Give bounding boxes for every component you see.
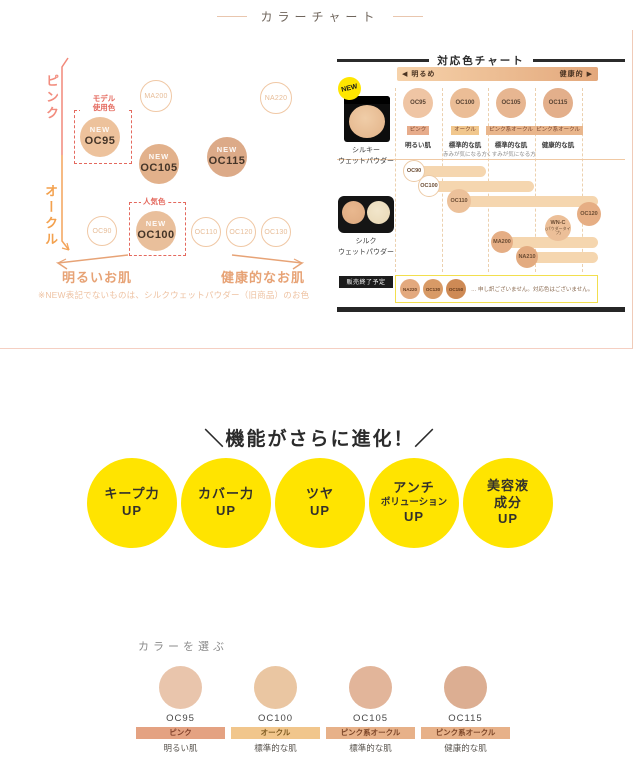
skin-type-label: 明るい肌 bbox=[391, 139, 445, 149]
swatch-row: OC95ピンク明るい肌OC100オークル標準的な肌OC105ピンク系オークル標準… bbox=[133, 666, 513, 754]
shade-circle-oc95: OC95 bbox=[403, 88, 433, 118]
swatch-oc95[interactable]: OC95ピンク明るい肌 bbox=[133, 666, 228, 754]
swatch-shade-label: OC95 bbox=[133, 713, 228, 724]
swatch-tone-badge: ピンク bbox=[136, 727, 225, 739]
shade-circle-oc90: OC90 bbox=[87, 216, 117, 246]
model-color-label: モデル 使用色 bbox=[80, 94, 128, 113]
shade-circle-oc100: NEWOC100 bbox=[136, 211, 176, 251]
y-axis-label-pink: ピンク bbox=[42, 74, 61, 122]
no-match-circle-na220: NA220 bbox=[400, 279, 420, 299]
no-match-text: … 申し訳ございません。対応色はございません。 bbox=[471, 285, 593, 293]
swatch-skin-label: 健康的な肌 bbox=[418, 742, 513, 754]
popular-color-label: 人気色 bbox=[141, 197, 168, 206]
swatch-skin-label: 明るい肌 bbox=[133, 742, 228, 754]
new-product-compact-image bbox=[344, 96, 390, 142]
swatch-shade-label: OC105 bbox=[323, 713, 418, 724]
swatch-color-circle bbox=[254, 666, 297, 709]
shade-circle-oc105: OC105 bbox=[496, 88, 526, 118]
shade-circle-oc115: OC115 bbox=[543, 88, 573, 118]
title-bar-right bbox=[533, 59, 625, 62]
swatch-oc100[interactable]: OC100オークル標準的な肌 bbox=[228, 666, 323, 754]
features-heading: ＼機能がさらに進化！／ bbox=[0, 424, 640, 451]
powder-pan-left bbox=[342, 201, 365, 224]
swatch-shade-label: OC100 bbox=[228, 713, 323, 724]
tone-scale-bar: ◀ 明るめ 健康的 ▶ bbox=[397, 67, 598, 81]
tone-badge: ピンク系オークル bbox=[486, 126, 536, 135]
swatch-oc115[interactable]: OC115ピンク系オークル健康的な肌 bbox=[418, 666, 513, 754]
x-axis-label-healthy: 健康的なお肌 bbox=[221, 267, 305, 286]
old-shade-circle-ma200: MA200 bbox=[491, 231, 513, 253]
feature-circle-4: 美容液成分UP bbox=[463, 458, 553, 548]
scale-left-label: ◀ 明るめ bbox=[402, 69, 435, 79]
skin-note-label bbox=[531, 150, 585, 157]
shade-column-oc115: OC115ピンク系オークル健康的な肌 bbox=[531, 88, 585, 157]
tone-badge: ピンク系オークル bbox=[533, 126, 583, 135]
swatch-tone-badge: オークル bbox=[231, 727, 320, 739]
powder-pan-right bbox=[367, 201, 390, 224]
no-match-circle-oc130: OC130 bbox=[423, 279, 443, 299]
shade-circle-ma200: MA200 bbox=[140, 80, 172, 112]
correspondence-chart-title-row: 対応色チャート bbox=[337, 53, 625, 68]
old-shade-circle-oc110: OC110 bbox=[447, 189, 471, 213]
feature-circle-1: カバー力UP bbox=[181, 458, 271, 548]
shade-column-oc95: OC95ピンク明るい肌 bbox=[391, 88, 445, 157]
swatch-skin-label: 標準的な肌 bbox=[323, 742, 418, 754]
color-picker-heading: カラーを選ぶ bbox=[138, 638, 228, 654]
left-chart-footnote: ※NEW表記でないものは、シルクウェットパウダー（旧商品）のお色 bbox=[38, 289, 338, 301]
swatch-tone-badge: ピンク系オークル bbox=[421, 727, 510, 739]
page-header: カラーチャート bbox=[0, 8, 640, 25]
swatch-color-circle bbox=[159, 666, 202, 709]
old-product-compact-image bbox=[338, 196, 394, 233]
y-axis-label-ochre: オークル bbox=[41, 184, 60, 248]
swatch-tone-badge: ピンク系オークル bbox=[326, 727, 415, 739]
old-shade-circle-na210: NA210 bbox=[516, 246, 538, 268]
shade-column-oc105: OC105ピンク系オークル標準的な肌くすみが気になる方 bbox=[484, 88, 538, 158]
no-match-circle-oc150: OC150 bbox=[446, 279, 466, 299]
correspondence-chart-title: 対応色チャート bbox=[437, 53, 524, 68]
skin-note-label: くすみが気になる方 bbox=[484, 150, 538, 158]
old-product-status: 販売終了予定 bbox=[331, 271, 401, 289]
old-shade-circle-oc100: OC100 bbox=[418, 175, 440, 197]
x-axis-label-bright: 明るいお肌 bbox=[62, 267, 132, 286]
old-shade-circle-wn-c: WN-C(パウダータイプ) bbox=[545, 215, 571, 241]
title-left-dash bbox=[217, 16, 247, 17]
skin-note-label bbox=[391, 150, 445, 157]
title-right-dash bbox=[393, 16, 423, 17]
shade-circle-oc110: OC110 bbox=[191, 217, 221, 247]
swatch-color-circle bbox=[349, 666, 392, 709]
tone-badge: ピンク bbox=[407, 126, 430, 135]
swatch-color-circle bbox=[444, 666, 487, 709]
skin-type-label: 健康的な肌 bbox=[531, 139, 585, 149]
shade-circle-oc100: OC100 bbox=[450, 88, 480, 118]
shade-circle-na220: NA220 bbox=[260, 82, 292, 114]
swatch-oc105[interactable]: OC105ピンク系オークル標準的な肌 bbox=[323, 666, 418, 754]
skin-type-label: 標準的な肌 bbox=[484, 139, 538, 149]
tone-badge: オークル bbox=[451, 126, 479, 135]
chart-bottom-bar bbox=[337, 307, 625, 312]
shade-circle-oc130: OC130 bbox=[261, 217, 291, 247]
feature-circle-3: アンチポリューションUP bbox=[369, 458, 459, 548]
correspondence-bar-oc110 bbox=[459, 196, 598, 207]
features-row: キープ力UPカバー力UPツヤUPアンチポリューションUP美容液成分UP bbox=[0, 458, 640, 548]
feature-circle-2: ツヤUP bbox=[275, 458, 365, 548]
shade-circle-oc105: NEWOC105 bbox=[139, 144, 179, 184]
old-product-name: シルク ウェットパウダー bbox=[331, 237, 401, 258]
scale-right-label: 健康的 ▶ bbox=[560, 69, 593, 79]
no-match-shade-circles: NA220OC130OC150 bbox=[400, 279, 466, 299]
correspondence-bar-oc100 bbox=[429, 181, 534, 192]
shade-circle-oc115: NEWOC115 bbox=[207, 137, 247, 177]
swatch-shade-label: OC115 bbox=[418, 713, 513, 724]
old-shade-circle-oc120: OC120 bbox=[577, 202, 601, 226]
no-match-box: NA220OC130OC150 … 申し訳ございません。対応色はございません。 bbox=[395, 275, 598, 303]
powder-pan bbox=[349, 105, 385, 138]
swatch-skin-label: 標準的な肌 bbox=[228, 742, 323, 754]
page-title: カラーチャート bbox=[261, 8, 380, 25]
feature-circle-0: キープ力UP bbox=[87, 458, 177, 548]
shade-circle-oc120: OC120 bbox=[226, 217, 256, 247]
shade-circle-oc95: NEWOC95 bbox=[80, 117, 120, 157]
discontinued-badge: 販売終了予定 bbox=[339, 276, 392, 288]
title-bar-left bbox=[337, 59, 429, 62]
